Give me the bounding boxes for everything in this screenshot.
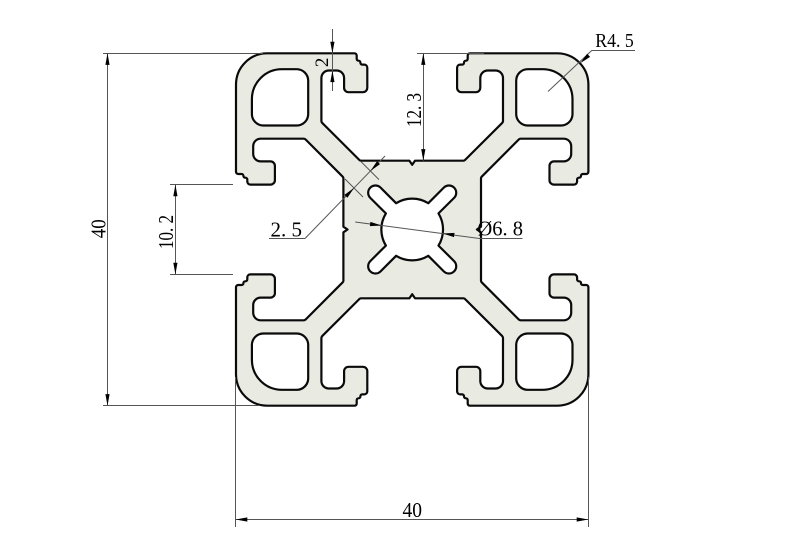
svg-text:40: 40 <box>402 498 422 522</box>
svg-text:40: 40 <box>86 219 110 238</box>
svg-text:R4. 5: R4. 5 <box>595 30 634 52</box>
svg-text:10. 2: 10. 2 <box>154 215 178 249</box>
svg-text:2. 5: 2. 5 <box>271 218 303 242</box>
svg-text:2: 2 <box>312 58 333 68</box>
svg-text:12. 3: 12. 3 <box>402 93 426 127</box>
svg-text:Ø6. 8: Ø6. 8 <box>478 216 524 240</box>
